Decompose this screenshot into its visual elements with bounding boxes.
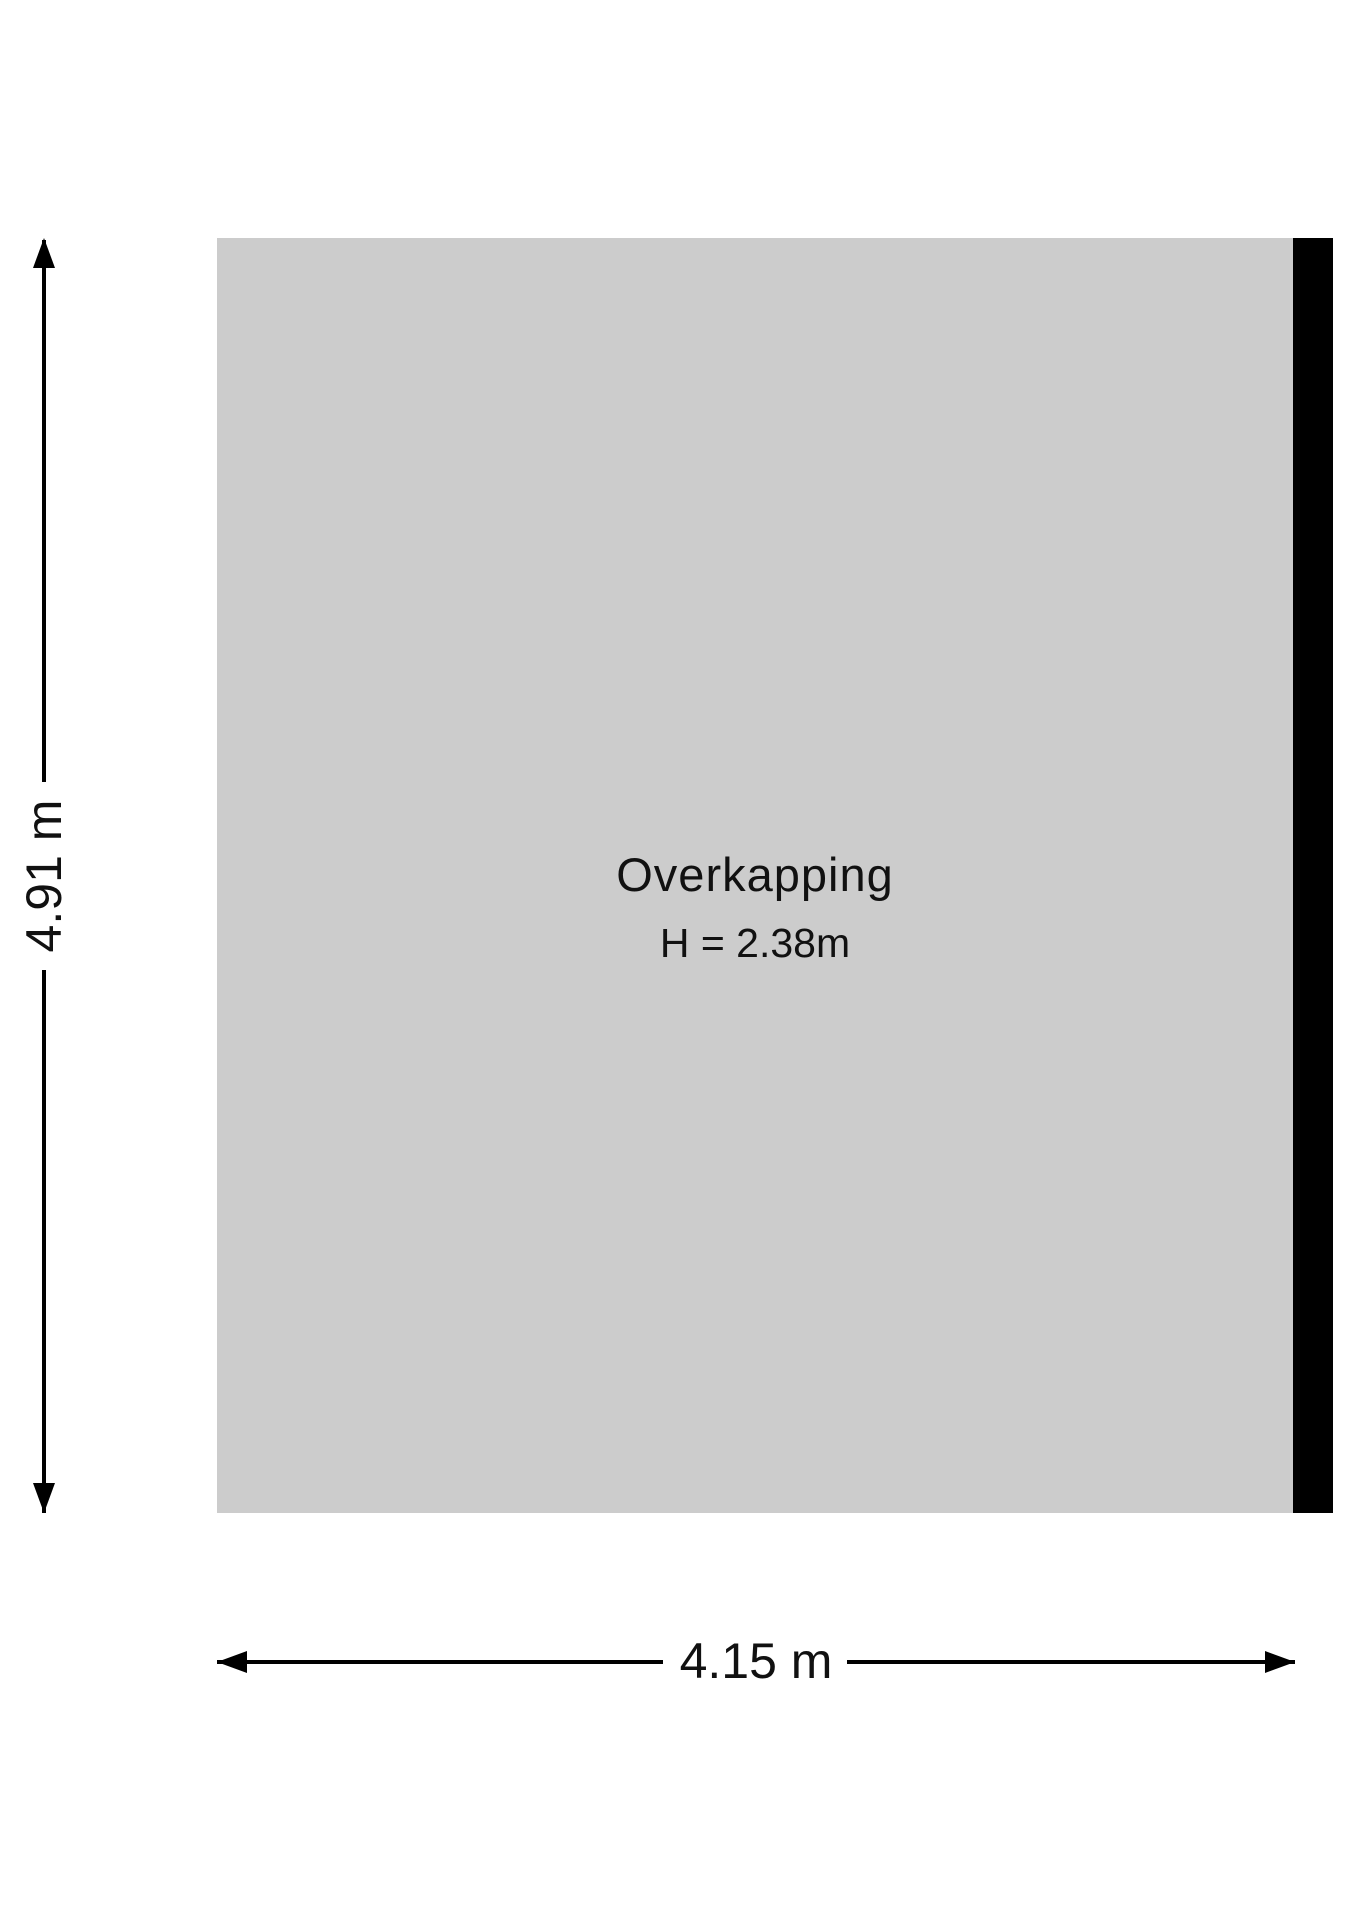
- wall-segment: [1293, 238, 1333, 1513]
- vertical-dimension-line-bottom: [42, 970, 46, 1513]
- vertical-dimension-line-top: [42, 240, 46, 782]
- floorplan-canvas: Overkapping H = 2.38m 4.91 m 4.15 m: [0, 0, 1358, 1920]
- dimension-arrow-right-icon: [1265, 1651, 1295, 1673]
- room-name-label: Overkapping: [217, 851, 1293, 898]
- vertical-dimension-label: 4.91 m: [18, 766, 70, 986]
- dimension-arrow-down-icon: [33, 1483, 55, 1513]
- room-ceiling-height-label: H = 2.38m: [217, 923, 1293, 964]
- horizontal-dimension-line-right: [847, 1660, 1295, 1664]
